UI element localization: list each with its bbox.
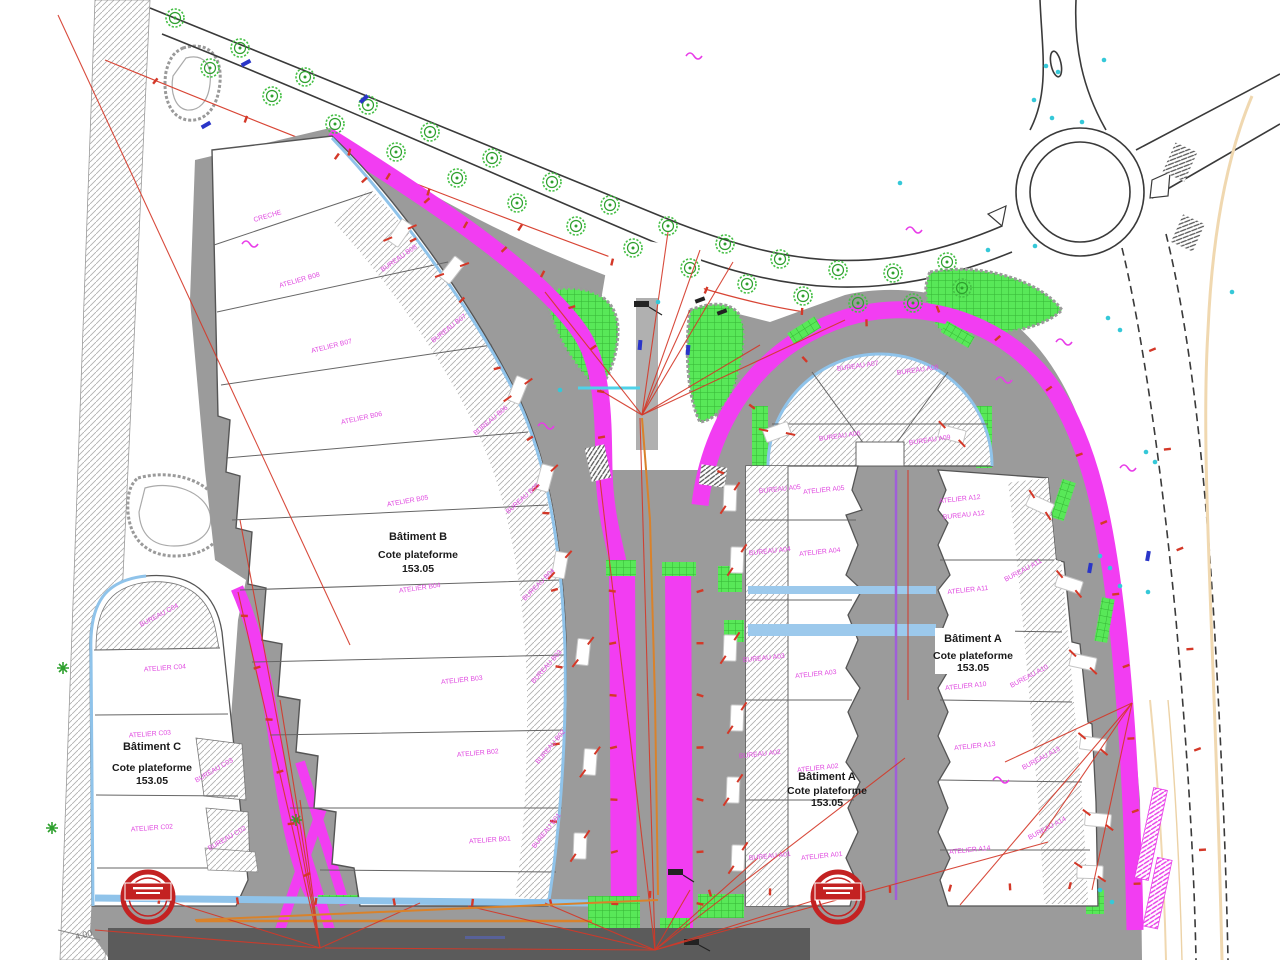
- survey-dot: [1098, 888, 1103, 893]
- svg-text:Cote plateforme: Cote plateforme: [378, 549, 458, 561]
- illegible-note: [465, 936, 505, 939]
- survey-dot: [986, 248, 991, 253]
- survey-dot: [1230, 290, 1235, 295]
- svg-text:153.05: 153.05: [402, 563, 434, 575]
- red-tick: [1134, 882, 1141, 885]
- red-tick: [697, 642, 704, 644]
- red-tick: [542, 512, 549, 515]
- survey-dot: [1098, 554, 1103, 559]
- red-tick: [865, 319, 868, 326]
- svg-text:Cote plateforme: Cote plateforme: [933, 650, 1013, 662]
- survey-dot: [1033, 244, 1038, 249]
- survey-dot: [558, 388, 563, 393]
- survey-dot: [1106, 316, 1111, 321]
- red-tick: [1199, 848, 1206, 851]
- site-plan-canvas: 4.00 CRECHEATELIER B08BUREAU B08ATELIER …: [0, 0, 1280, 960]
- walkway-west: [622, 566, 624, 930]
- survey-dot: [1056, 70, 1061, 75]
- survey-dot: [1032, 98, 1037, 103]
- red-tick: [769, 888, 771, 895]
- survey-dot: [1110, 900, 1115, 905]
- red-tick: [696, 746, 703, 749]
- red-tick: [801, 308, 804, 315]
- red-tick: [696, 850, 703, 853]
- survey-dot: [1118, 328, 1123, 333]
- svg-text:Bâtiment A: Bâtiment A: [798, 771, 856, 783]
- red-tick: [266, 718, 273, 721]
- svg-text:153.05: 153.05: [136, 775, 168, 787]
- survey-dot: [1080, 120, 1085, 125]
- access-median: [636, 298, 658, 450]
- walkway-east: [678, 566, 680, 930]
- survey-dot: [1118, 584, 1123, 589]
- red-tick: [241, 615, 248, 618]
- survey-dot: [1153, 460, 1158, 465]
- svg-text:Bâtiment A: Bâtiment A: [944, 633, 1002, 645]
- red-tick: [1127, 737, 1134, 740]
- survey-dot: [1102, 58, 1107, 63]
- survey-dot: [1044, 64, 1049, 69]
- red-tick: [1009, 883, 1012, 890]
- survey-dot: [1144, 450, 1149, 455]
- survey-dot: [898, 181, 903, 186]
- svg-text:Bâtiment C: Bâtiment C: [123, 741, 181, 753]
- survey-dot: [1108, 566, 1113, 571]
- svg-text:153.05: 153.05: [811, 797, 843, 809]
- red-tick: [889, 886, 892, 893]
- svg-text:153.05: 153.05: [957, 662, 989, 674]
- survey-dot: [656, 300, 661, 305]
- red-tick: [611, 903, 618, 906]
- dark-band: [108, 928, 810, 960]
- survey-dot: [1050, 116, 1055, 121]
- retention-pond-north: [165, 46, 220, 120]
- site-plan-drawing: 4.00 CRECHEATELIER B08BUREAU B08ATELIER …: [0, 0, 1280, 960]
- svg-text:Cote plateforme: Cote plateforme: [787, 785, 867, 797]
- svg-text:Cote plateforme: Cote plateforme: [112, 762, 192, 774]
- red-tick: [610, 798, 617, 801]
- survey-dot: [1146, 590, 1151, 595]
- svg-text:Bâtiment B: Bâtiment B: [389, 531, 447, 543]
